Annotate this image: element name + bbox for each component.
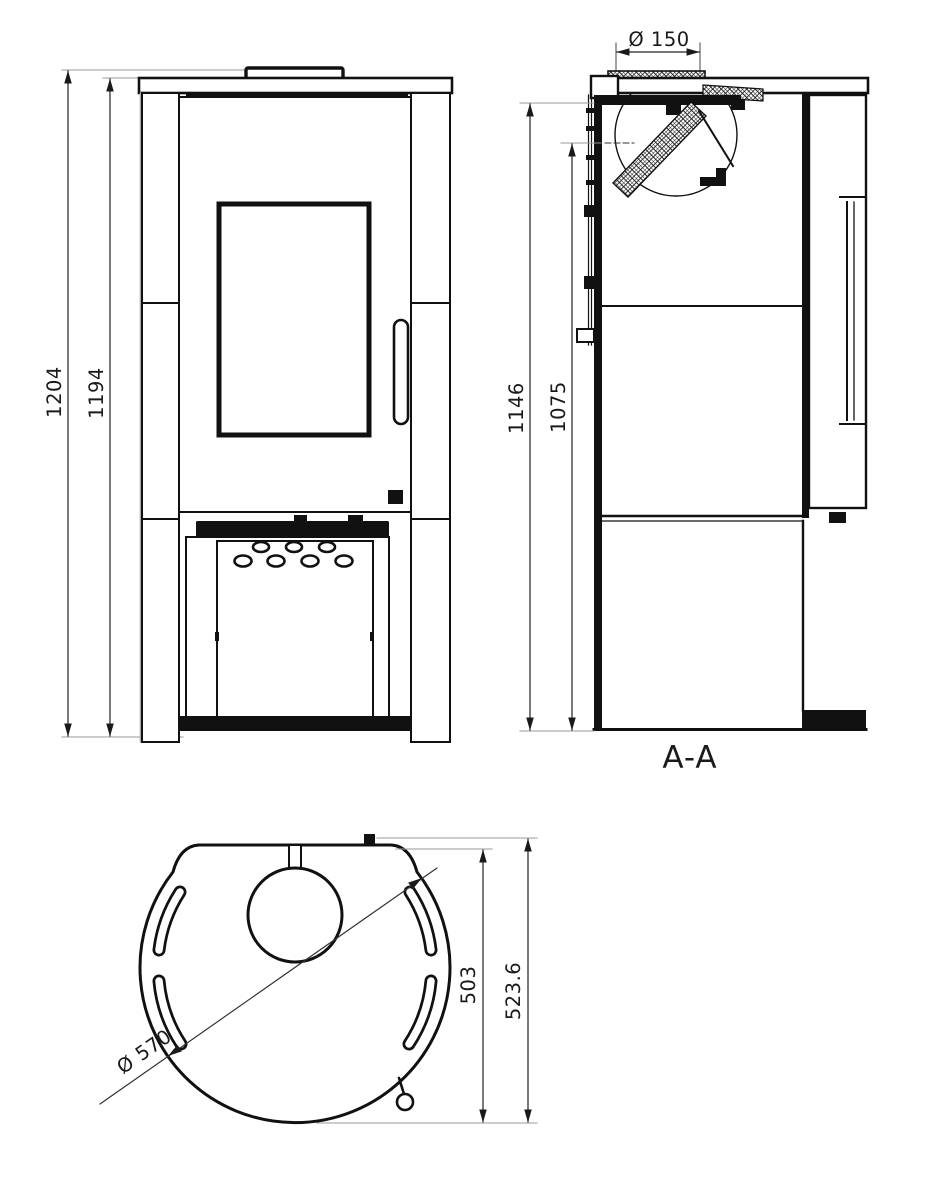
baffle-step-bracket — [700, 168, 726, 186]
baffle-plate-hatched — [613, 102, 706, 197]
vent-slot — [319, 542, 335, 552]
vent-slot — [235, 556, 252, 567]
side-panel-foot — [829, 512, 846, 523]
section-view: Ø 150 — [505, 28, 868, 776]
flue-opening — [248, 868, 342, 962]
band-tab-left — [294, 515, 307, 522]
lower-door-tick-right — [370, 632, 374, 641]
vent-slot — [336, 556, 353, 567]
door-handle-front — [394, 320, 408, 424]
base-bar-section — [802, 710, 866, 730]
dim-label-top-plate-height: 1194 — [85, 367, 108, 419]
dim-label-1146: 1146 — [505, 382, 528, 434]
drawing-canvas: 1204 1194 — [0, 0, 931, 1200]
lower-black-band — [196, 521, 389, 537]
dim-label-flue-diameter: Ø 150 — [628, 28, 689, 51]
top-plate-tab — [364, 834, 375, 845]
lower-door-tick-left — [215, 632, 219, 641]
front-view: 1204 1194 — [43, 68, 452, 742]
firebox-top-bar — [594, 95, 741, 105]
flue-stem — [289, 845, 301, 868]
dim-label-503: 503 — [457, 966, 480, 1005]
front-wall-section — [594, 95, 602, 728]
front-wall-liner-lines — [589, 95, 592, 345]
vent-slot — [268, 556, 285, 567]
base-bar-front — [179, 716, 411, 731]
baffle-support-line — [699, 111, 733, 166]
door-latch-block — [388, 490, 403, 504]
baffle-clip-right — [731, 100, 745, 110]
vent-slot — [253, 542, 269, 552]
dim-label-overall-height: 1204 — [43, 366, 66, 418]
handle-knob-top — [397, 1094, 413, 1110]
stove-technical-drawing: 1204 1194 — [0, 0, 931, 1200]
vent-slots-row-top — [253, 542, 335, 552]
top-view: Ø 570 503 523.6 — [100, 834, 537, 1123]
baffle-clip-left — [666, 105, 681, 115]
section-title: A-A — [662, 740, 717, 776]
front-wall-tab — [577, 329, 594, 342]
vent-slot — [286, 542, 302, 552]
door-window-glass — [219, 204, 369, 435]
vent-slot — [302, 556, 319, 567]
top-plate-front-trim — [591, 76, 618, 98]
side-panel-right — [411, 93, 450, 742]
dim-label-523-6: 523.6 — [502, 962, 525, 1020]
side-panel-profile — [809, 95, 866, 508]
band-tab-right — [348, 515, 363, 522]
dim-label-1075: 1075 — [547, 381, 570, 433]
side-panel-left — [142, 93, 179, 742]
top-plate-front — [139, 78, 452, 93]
